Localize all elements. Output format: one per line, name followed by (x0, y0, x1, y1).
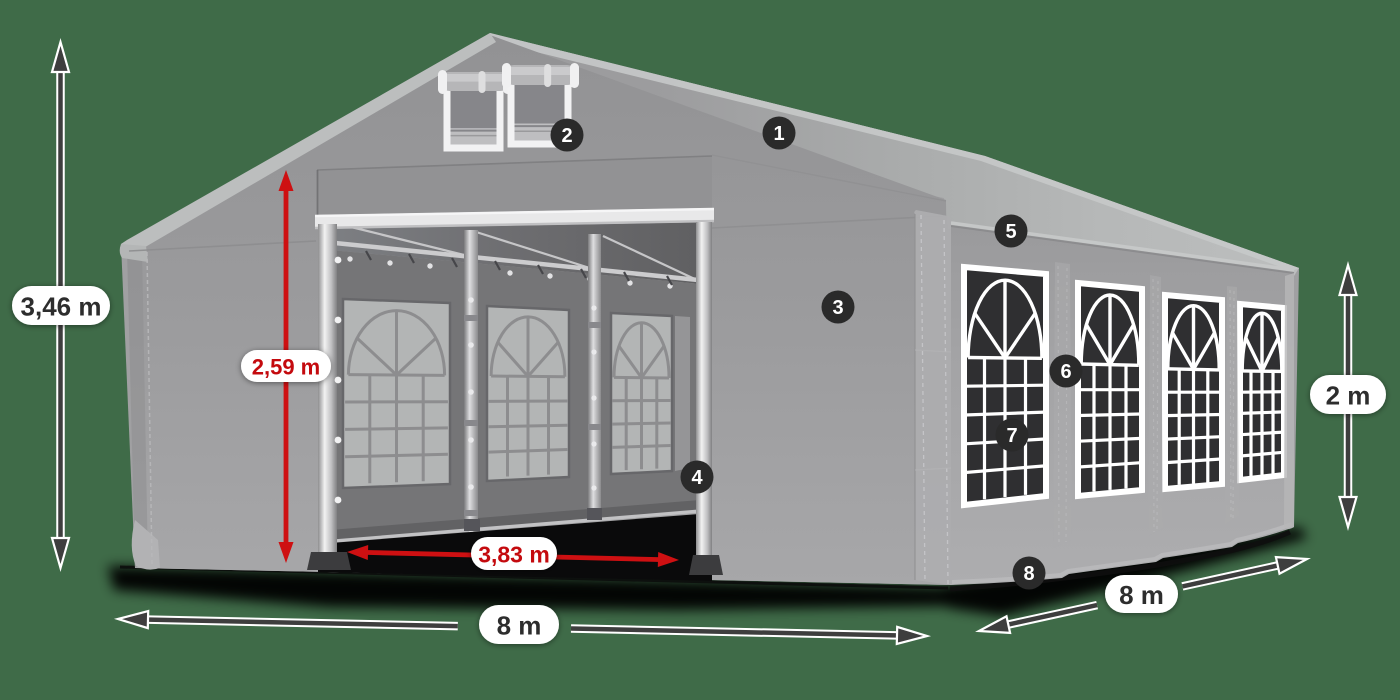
svg-text:1: 1 (773, 123, 784, 145)
svg-text:7: 7 (1006, 425, 1017, 447)
svg-text:8 m: 8 m (497, 611, 542, 641)
svg-text:3,46 m: 3,46 m (21, 292, 102, 322)
svg-text:3: 3 (832, 297, 843, 319)
svg-text:2 m: 2 m (1326, 381, 1371, 411)
svg-text:3,83 m: 3,83 m (478, 542, 550, 568)
svg-text:2: 2 (561, 125, 572, 147)
svg-text:6: 6 (1060, 361, 1071, 383)
svg-text:4: 4 (691, 467, 703, 489)
svg-text:2,59 m: 2,59 m (252, 355, 321, 380)
svg-text:8 m: 8 m (1119, 580, 1164, 610)
svg-text:8: 8 (1023, 563, 1034, 585)
svg-text:5: 5 (1005, 221, 1016, 243)
